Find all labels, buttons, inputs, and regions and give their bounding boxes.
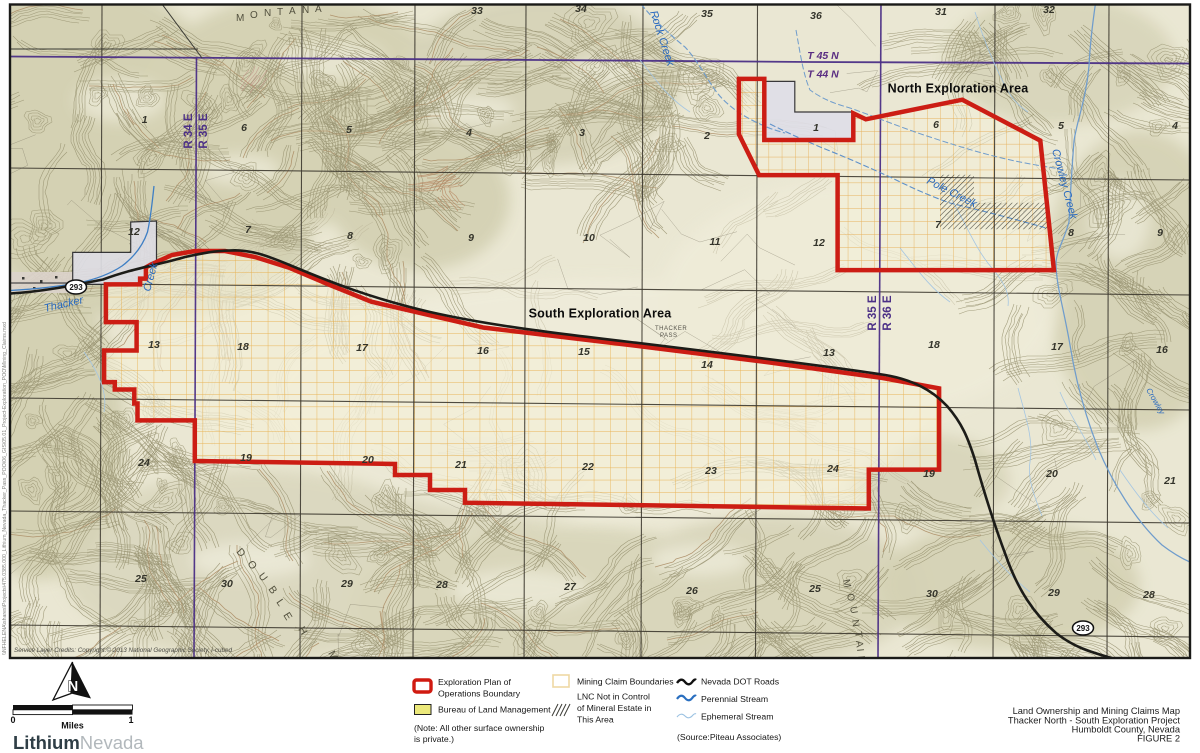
svg-text:21: 21: [1163, 475, 1176, 487]
svg-text:N: N: [302, 5, 309, 16]
svg-text:T 45 N: T 45 N: [807, 50, 839, 62]
svg-text:This Area: This Area: [577, 715, 614, 725]
svg-text:12: 12: [128, 226, 140, 238]
svg-text:Bureau of Land Management: Bureau of Land Management: [438, 705, 551, 715]
svg-text:Land Ownership and Mining Clai: Land Ownership and Mining Claims Map: [1013, 706, 1180, 716]
svg-text:(Note: All other surface owner: (Note: All other surface ownership: [414, 723, 545, 733]
svg-text:14: 14: [701, 359, 713, 371]
svg-text:28: 28: [435, 579, 448, 591]
svg-text:South Exploration Area: South Exploration Area: [529, 307, 673, 321]
svg-text:36: 36: [810, 10, 822, 22]
svg-text:32: 32: [1043, 4, 1055, 16]
svg-text:1: 1: [128, 715, 133, 725]
svg-text:LNC Not in Control: LNC Not in Control: [577, 692, 650, 702]
svg-text:25: 25: [808, 583, 821, 595]
svg-text:A: A: [289, 6, 296, 17]
svg-text:1: 1: [813, 122, 819, 134]
svg-text:6: 6: [241, 122, 247, 134]
svg-text:11: 11: [710, 236, 721, 248]
svg-text:24: 24: [826, 463, 839, 475]
svg-text:8: 8: [1068, 227, 1074, 239]
svg-text:17: 17: [356, 342, 369, 354]
svg-text:N: N: [264, 8, 271, 19]
svg-text:19: 19: [240, 452, 252, 464]
svg-text:T 44 N: T 44 N: [807, 69, 839, 81]
svg-text:24: 24: [137, 457, 150, 469]
svg-text:13: 13: [148, 339, 160, 351]
svg-text:Operations Boundary: Operations Boundary: [438, 689, 521, 699]
svg-text:PASS: PASS: [660, 333, 678, 339]
svg-text:17: 17: [1051, 341, 1064, 353]
svg-text:Ephemeral Stream: Ephemeral Stream: [701, 712, 773, 722]
svg-text:2: 2: [703, 130, 710, 142]
svg-text:18: 18: [237, 341, 249, 353]
svg-text:16: 16: [1156, 344, 1168, 356]
svg-text:25: 25: [134, 573, 147, 585]
svg-text:27: 27: [563, 581, 577, 593]
svg-text:4: 4: [465, 127, 472, 139]
svg-text:North Exploration Area: North Exploration Area: [888, 82, 1030, 96]
svg-text:16: 16: [477, 345, 489, 357]
svg-text:\\NFHELENA\shares\Projects\475: \\NFHELENA\shares\Projects\475.0385.000_…: [2, 322, 8, 655]
svg-text:R 35 E: R 35 E: [198, 113, 210, 148]
svg-text:9: 9: [1157, 227, 1163, 239]
svg-text:Exploration Plan of: Exploration Plan of: [438, 677, 512, 687]
svg-text:Mining Claim Boundaries: Mining Claim Boundaries: [577, 677, 674, 687]
svg-text:18: 18: [928, 339, 940, 351]
svg-text:6: 6: [933, 119, 939, 131]
svg-text:10: 10: [583, 232, 595, 244]
svg-text:3: 3: [579, 127, 585, 139]
svg-text:29: 29: [340, 578, 353, 590]
svg-text:29: 29: [1047, 587, 1060, 599]
svg-text:30: 30: [926, 588, 938, 600]
svg-text:1: 1: [142, 114, 148, 126]
svg-text:19: 19: [923, 468, 935, 480]
svg-text:5: 5: [346, 124, 352, 136]
svg-text:21: 21: [454, 459, 467, 471]
svg-text:0: 0: [10, 715, 15, 725]
svg-text:M: M: [236, 13, 244, 24]
svg-text:23: 23: [704, 465, 717, 477]
svg-text:33: 33: [471, 5, 483, 17]
svg-text:35: 35: [701, 8, 713, 20]
svg-text:R 34 E: R 34 E: [183, 113, 195, 148]
svg-text:20: 20: [1045, 468, 1058, 480]
svg-text:of Mineral Estate in: of Mineral Estate in: [577, 703, 652, 713]
svg-text:THACKER: THACKER: [655, 326, 687, 332]
svg-text:LithiumNevada: LithiumNevada: [13, 732, 144, 753]
svg-text:R 35 E: R 35 E: [867, 295, 879, 330]
svg-text:8: 8: [347, 230, 353, 242]
svg-text:293: 293: [1076, 624, 1090, 633]
svg-text:30: 30: [221, 578, 233, 590]
svg-text:N: N: [849, 619, 861, 628]
svg-text:13: 13: [823, 347, 835, 359]
svg-text:T: T: [277, 7, 283, 18]
svg-text:15: 15: [578, 346, 590, 358]
svg-text:5: 5: [1058, 120, 1064, 132]
svg-text:R 36 E: R 36 E: [882, 295, 894, 330]
svg-text:FIGURE 2: FIGURE 2: [1137, 734, 1180, 744]
svg-text:Miles: Miles: [61, 721, 84, 731]
svg-text:20: 20: [361, 454, 374, 466]
svg-text:Service Layer Credits: Copyrig: Service Layer Credits: Copyright:© 2013 …: [14, 646, 233, 654]
svg-text:O: O: [250, 10, 258, 21]
svg-text:Perennial Stream: Perennial Stream: [701, 694, 768, 704]
svg-text:N: N: [68, 679, 78, 695]
svg-text:31: 31: [935, 6, 947, 18]
svg-text:293: 293: [69, 283, 83, 292]
svg-text:26: 26: [685, 585, 698, 597]
svg-text:4: 4: [1171, 120, 1178, 132]
svg-text:(Source:Piteau Associates): (Source:Piteau Associates): [677, 732, 781, 742]
svg-text:Nevada DOT Roads: Nevada DOT Roads: [701, 677, 780, 687]
svg-text:28: 28: [1142, 589, 1155, 601]
svg-text:12: 12: [813, 237, 825, 249]
svg-text:is private.): is private.): [414, 734, 454, 744]
svg-text:9: 9: [468, 232, 474, 244]
svg-text:22: 22: [581, 461, 594, 473]
